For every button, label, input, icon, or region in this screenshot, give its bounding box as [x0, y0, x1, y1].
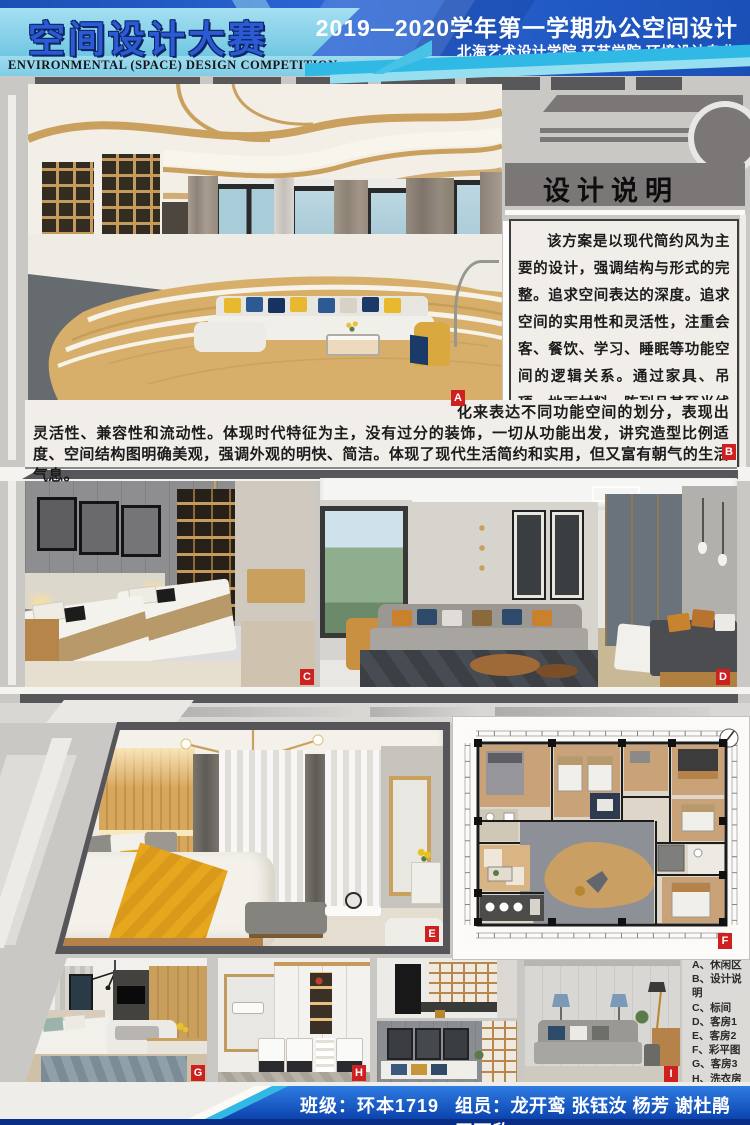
- label-i: I: [664, 1066, 678, 1082]
- photo-e-dark-curtain-2: [305, 754, 327, 906]
- legend-item-c: C、标间: [692, 1001, 750, 1015]
- design-deco-circle-bar: [700, 128, 750, 142]
- photo-a-armchair-throw: [410, 335, 428, 366]
- elevation-top-stool: [435, 1010, 445, 1018]
- legend-item-a: A、休闲区: [692, 958, 750, 972]
- design-deco-line-1: [540, 128, 702, 133]
- slant-highlight-left: [46, 700, 194, 723]
- label-c: C: [300, 669, 314, 685]
- photo-d-pendant-lamp-1: [702, 498, 704, 544]
- footer-members: 组员：龙开鸾 张钰汝 杨芳 谢杜鹃 王雨欣: [455, 1092, 750, 1125]
- design-heading-underline: [505, 210, 745, 215]
- photo-g-rug: [41, 1056, 187, 1082]
- cd-bottom-white-strip: [0, 687, 750, 694]
- photo-i-sofa-pillow-white: [570, 1026, 587, 1040]
- elevation-top-wall-right: [497, 958, 517, 1018]
- photo-a-pillow-yellow-1: [224, 298, 241, 313]
- photo-g-tv: [117, 986, 145, 1004]
- elevation-top-door: [395, 964, 421, 1014]
- photo-d-bed-pillow-orange-2: [691, 609, 715, 628]
- photo-h-floor: [218, 1072, 370, 1082]
- photo-d-coffee-table: [470, 654, 540, 676]
- photo-d-bed-pillow-orange-1: [667, 613, 691, 633]
- photo-c-desk: [247, 569, 305, 603]
- photo-c-art-frame-2: [79, 501, 119, 555]
- photo-d-side-table: [536, 664, 578, 678]
- photo-g-flowers: [173, 1020, 191, 1036]
- legend-item-g: G、客房3: [692, 1057, 750, 1071]
- photo-h-washer-2: [286, 1038, 313, 1076]
- photo-c-bed-1-pillow-dark: [64, 606, 86, 623]
- floor-plan-drawing: [458, 725, 744, 945]
- elevation-photo-bottom: [377, 1021, 517, 1082]
- design-heading: 设计说明: [543, 169, 745, 208]
- photo-i-sofa-seat: [534, 1042, 642, 1064]
- elevation-photo-top: [377, 958, 517, 1018]
- left-edge-strip-2: [8, 480, 16, 685]
- photo-i-sofa-pillow-navy: [548, 1026, 565, 1040]
- legend-item-b: B、设计说明: [692, 972, 750, 1000]
- photo-d-pendant-bulb-2: [718, 554, 727, 566]
- photo-a-pillow-yellow-3: [384, 298, 401, 313]
- elevation-bottom-shelving: [482, 1021, 517, 1082]
- photo-d-pillow-orange-1: [392, 610, 412, 626]
- photo-i-floor-lamp-shade: [648, 982, 666, 992]
- photo-i-wall-lamp-2: [610, 994, 628, 1007]
- elevation-bottom-cushion-blue: [391, 1064, 407, 1075]
- photo-a-pillow-navy-1: [268, 298, 285, 313]
- elevation-top-shelving: [429, 962, 497, 1002]
- elevation-bottom-cushion-gold: [411, 1064, 427, 1075]
- photo-i-chair: [644, 1044, 660, 1068]
- photo-e-side-table: [411, 862, 441, 904]
- photo-d-pillow-orange-2: [532, 610, 552, 626]
- photo-a-pillow-yellow-2: [290, 297, 307, 312]
- floor-plan-panel: [452, 716, 750, 960]
- competition-poster: 空间设计大赛 ENVIRONMENTAL (SPACE) DESIGN COMP…: [0, 0, 750, 1125]
- photo-a-pillow-blue-1: [246, 297, 263, 312]
- label-a: A: [451, 390, 465, 406]
- label-f: F: [718, 933, 732, 949]
- poster-title-en: ENVIRONMENTAL (SPACE) DESIGN COMPETITION: [8, 58, 338, 73]
- design-heading-banner: 设计说明: [505, 163, 745, 206]
- label-d: D: [716, 669, 730, 685]
- photo-c-art-frame-1: [37, 497, 77, 551]
- poster-title-cn: 空间设计大赛: [28, 9, 268, 63]
- legend-item-e: E、客房2: [692, 1029, 750, 1043]
- left-edge-strip: [8, 95, 16, 460]
- photo-c-art-frame-3: [121, 505, 161, 557]
- photo-h-sink: [232, 1002, 264, 1014]
- right-edge-strip: [740, 215, 746, 470]
- label-e: E: [425, 926, 439, 942]
- elevation-bottom-frame-2: [415, 1028, 441, 1060]
- b-first-line-spacer: [25, 400, 457, 423]
- photo-d-concrete-wall: [682, 486, 737, 626]
- photo-e-guestroom-2: [63, 730, 443, 946]
- photo-a-pillow-navy-2: [362, 297, 379, 312]
- footer-class: 班级：环本1719: [300, 1092, 439, 1118]
- photo-c-bed-2-pillow-dark: [156, 588, 175, 603]
- photo-d-art-frame-2: [550, 510, 584, 600]
- photo-e-bench: [245, 902, 327, 934]
- photo-c-standard-room: [25, 481, 315, 687]
- photo-d-pillow-navy-2: [502, 609, 522, 625]
- photo-i-lamp-stem-2: [618, 1007, 620, 1021]
- photo-d-guestroom-1: [320, 478, 737, 687]
- legend-panel: A、休闲区 B、设计说明 C、标间 D、客房1 E、客房2 F、彩平图 G、客房…: [682, 955, 750, 1085]
- label-h: H: [352, 1065, 366, 1081]
- photo-h-laundry-room: [218, 958, 370, 1082]
- photo-i-floor: [524, 1066, 680, 1082]
- photo-a-leisure-area: [28, 84, 502, 400]
- header-course-line: 2019—2020学年第一学期办公空间设计: [316, 9, 738, 43]
- photo-c-nightstand: [25, 619, 59, 663]
- photo-c-desk-area: [235, 481, 315, 626]
- photo-d-bed-pillow-white: [715, 614, 735, 631]
- photo-a-pillow-gray: [340, 298, 357, 313]
- photo-d-pillow-tan: [472, 610, 492, 626]
- photo-i-elevation: [524, 958, 680, 1082]
- elevation-bottom-plant: [473, 1049, 485, 1061]
- photo-e-bed-base: [63, 938, 263, 946]
- photo-g-bed-pillow-teal: [42, 1017, 63, 1032]
- photo-h-washer-1: [258, 1038, 285, 1076]
- photo-d-pendant-bulb-1: [698, 542, 707, 554]
- label-g: G: [191, 1065, 205, 1081]
- photo-a-flowers: [344, 320, 360, 333]
- photo-a-pillow-blue-2: [318, 298, 335, 313]
- photo-i-wall-lamp-1: [552, 994, 570, 1007]
- statement-block-b: 化来表达不同功能空间的划分，表现出灵活性、兼容性和流动性。体现时代特征为主，没有…: [25, 400, 737, 469]
- elevation-top-counter: [421, 1002, 497, 1012]
- elevation-bottom-cushion-navy: [431, 1064, 447, 1075]
- photo-d-pillow-navy-1: [417, 609, 437, 625]
- photo-a-sofa-chaise: [194, 322, 266, 352]
- photo-d-pendant-lamp-2: [722, 502, 724, 556]
- photo-e-sheer-2: [325, 750, 383, 910]
- design-deco-line-2: [540, 137, 702, 142]
- photo-a-coffee-table: [326, 334, 380, 356]
- elevation-bottom-frame-3: [443, 1028, 469, 1060]
- photo-i-sofa-pillow-gray: [592, 1026, 609, 1040]
- deco-dash-6: [551, 77, 625, 90]
- photo-h-towels: [316, 1038, 334, 1072]
- photo-d-art-frame-1: [512, 510, 546, 600]
- photo-d-pillow-white: [442, 610, 462, 626]
- photo-d-hanging-lights: [478, 514, 486, 576]
- photo-e-flower-vase: [415, 846, 433, 862]
- photo-i-plant: [634, 1010, 650, 1030]
- photo-g-bed-pillow-white: [64, 1015, 85, 1030]
- legend-item-f: F、彩平图: [692, 1043, 750, 1057]
- photo-e-decor-ball: [345, 892, 362, 909]
- legend-item-d: D、客房1: [692, 1015, 750, 1029]
- photo-g-guestroom-3: [25, 958, 207, 1082]
- deco-dash-7: [636, 77, 682, 90]
- label-b: B: [722, 444, 736, 460]
- photo-i-lamp-stem-1: [560, 1007, 562, 1021]
- photo-h-flower-red: [313, 976, 325, 986]
- elevation-bottom-frame-1: [387, 1028, 413, 1060]
